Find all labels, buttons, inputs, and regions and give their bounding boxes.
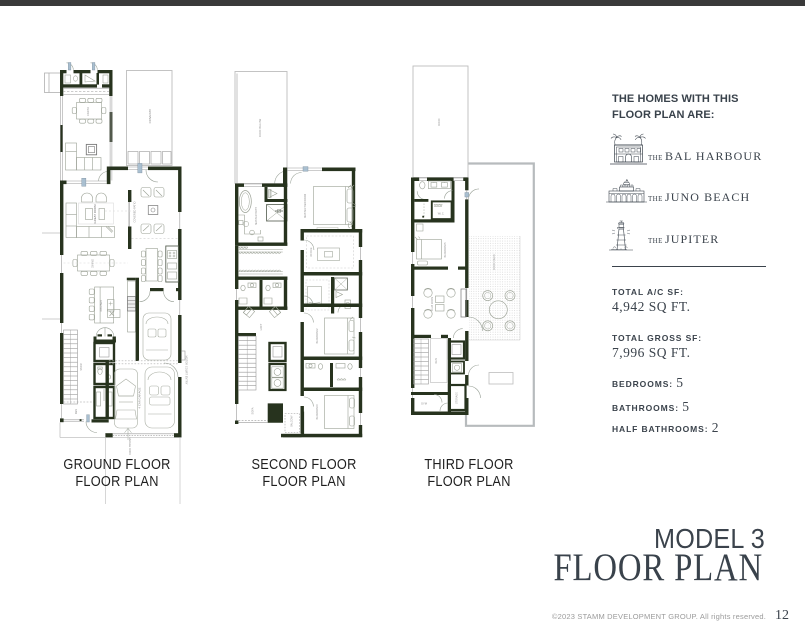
svg-text:OFFICE: OFFICE — [310, 247, 313, 256]
svg-text:W.I.C.: W.I.C. — [438, 213, 445, 216]
svg-text:GYM: GYM — [421, 402, 427, 406]
svg-text:GARAGE DOOR: GARAGE DOOR — [128, 437, 131, 455]
svg-text:CLUB ROOM: CLUB ROOM — [431, 297, 434, 311]
svg-text:BEDROOM 5: BEDROOM 5 — [444, 242, 447, 258]
svg-text:COVERED PATIO: COVERED PATIO — [133, 202, 137, 223]
svg-text:DEN: DEN — [74, 409, 78, 415]
svg-text:LOFT: LOFT — [259, 323, 263, 330]
svg-text:MASTER BATH: MASTER BATH — [255, 207, 258, 225]
svg-text:SOFA: SOFA — [251, 407, 255, 414]
svg-text:MASTER BEDROOM: MASTER BEDROOM — [304, 194, 307, 218]
svg-text:DINING: DINING — [92, 259, 95, 268]
svg-text:ROOF DECK: ROOF DECK — [492, 254, 496, 270]
svg-text:GREAT ROOM: GREAT ROOM — [93, 204, 97, 224]
svg-text:4 CAR GARAGE: 4 CAR GARAGE — [138, 387, 142, 408]
svg-text:DRIVEWAY: DRIVEWAY — [148, 109, 152, 124]
svg-text:BEDROOM 2: BEDROOM 2 — [316, 328, 319, 344]
svg-text:BALCONY: BALCONY — [291, 415, 294, 427]
svg-text:CASITA: CASITA — [87, 107, 90, 116]
svg-text:DEN: DEN — [435, 358, 438, 363]
svg-text:KITCHEN: KITCHEN — [100, 300, 103, 311]
svg-text:STORAGE: STORAGE — [456, 392, 459, 404]
svg-text:ROOF: ROOF — [437, 118, 441, 126]
svg-text:ROOF BELOW: ROOF BELOW — [258, 118, 262, 137]
svg-text:BEDROOM 3: BEDROOM 3 — [316, 404, 319, 420]
svg-text:STAIR: STAIR — [80, 363, 83, 370]
